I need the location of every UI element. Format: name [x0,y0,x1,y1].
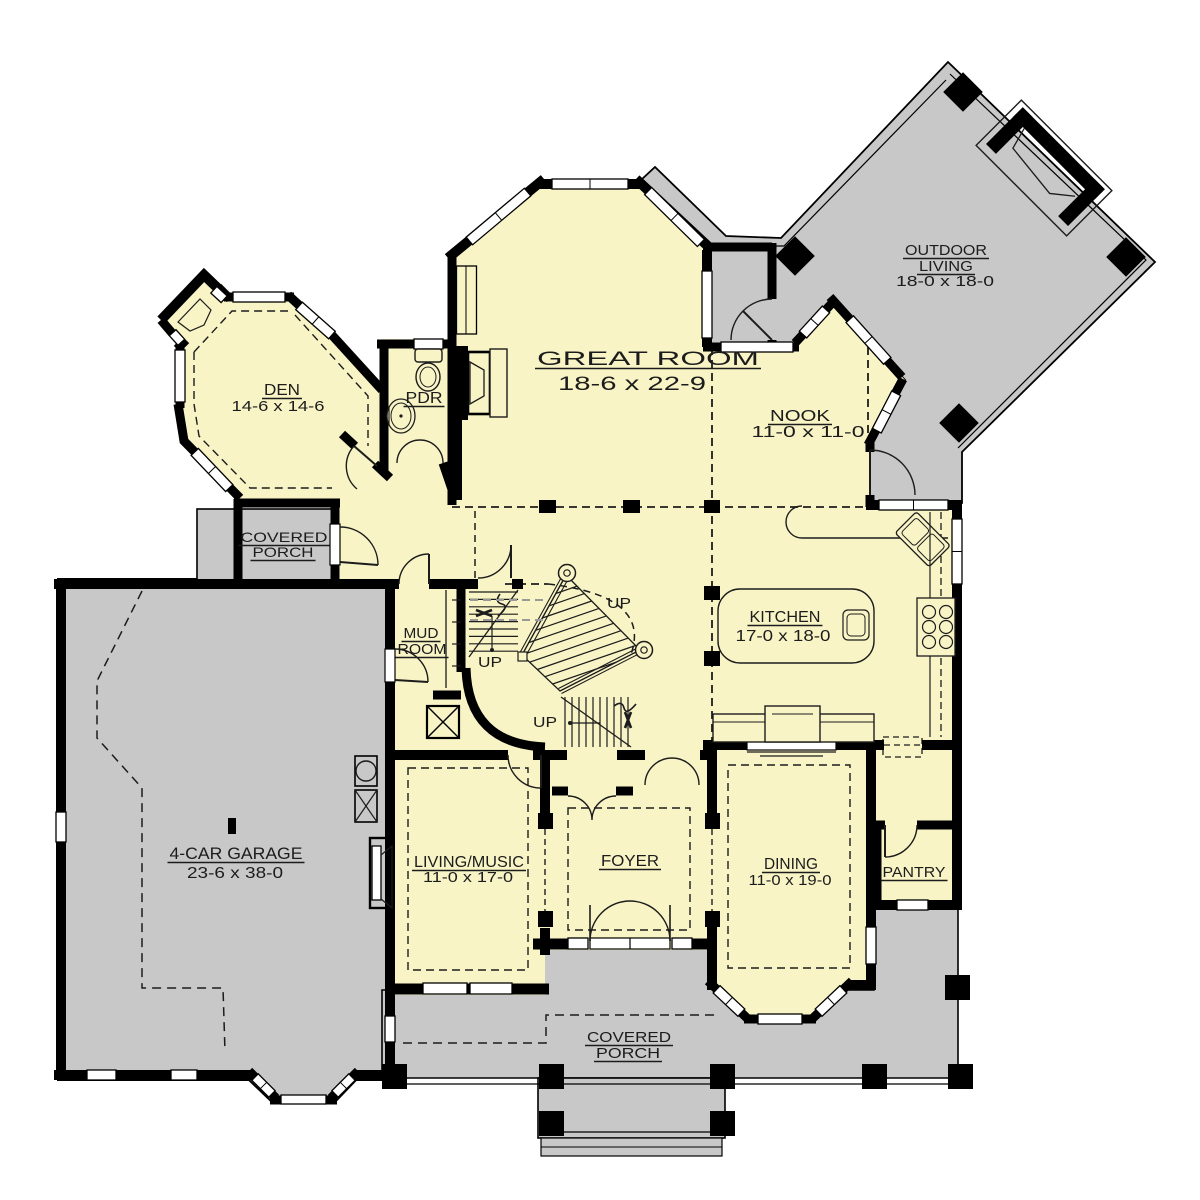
svg-text:18-0 x 18-0: 18-0 x 18-0 [896,273,994,290]
svg-text:UP: UP [533,714,557,731]
svg-text:DEN: DEN [264,382,300,399]
svg-text:PANTRY: PANTRY [883,864,946,881]
svg-text:DINING: DINING [764,856,818,873]
svg-text:11-0 x 19-0: 11-0 x 19-0 [749,872,832,889]
svg-text:MUD: MUD [404,625,439,642]
svg-text:11-0 x 17-0: 11-0 x 17-0 [423,869,513,886]
svg-text:18-6 x 22-9: 18-6 x 22-9 [558,374,706,395]
svg-text:UP: UP [478,654,502,671]
svg-text:UP: UP [607,595,631,612]
svg-text:ROOM: ROOM [398,641,447,658]
svg-text:NOOK: NOOK [770,408,830,425]
svg-text:11-0 x 11-0: 11-0 x 11-0 [752,424,865,441]
svg-text:KITCHEN: KITCHEN [750,609,821,626]
svg-text:4-CAR GARAGE: 4-CAR GARAGE [170,844,303,863]
svg-text:PORCH: PORCH [596,1045,660,1062]
svg-text:GREAT ROOM: GREAT ROOM [537,349,759,370]
svg-text:PORCH: PORCH [253,544,314,560]
svg-text:14-6 x 14-6: 14-6 x 14-6 [232,398,325,415]
svg-text:23-6 x 38-0: 23-6 x 38-0 [187,865,283,882]
svg-text:OUTDOOR: OUTDOOR [905,242,987,259]
svg-text:COVERED: COVERED [587,1029,671,1046]
svg-text:17-0 x 18-0: 17-0 x 18-0 [736,628,831,645]
svg-text:FOYER: FOYER [601,853,659,870]
svg-text:PDR: PDR [406,390,443,407]
svg-text:COVERED: COVERED [241,529,328,545]
